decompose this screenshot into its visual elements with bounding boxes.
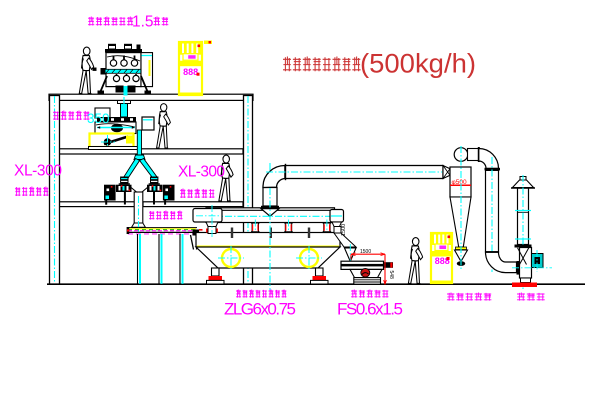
- svg-text:548: 548: [388, 271, 394, 280]
- svg-text:ZLG6x0.75: ZLG6x0.75: [224, 300, 296, 319]
- svg-text:888: 888: [183, 67, 198, 77]
- svg-text:1.5: 1.5: [132, 14, 154, 31]
- svg-text:350: 350: [87, 111, 110, 126]
- svg-text:XL-300: XL-300: [178, 164, 225, 181]
- svg-text:FS0.6x1.5: FS0.6x1.5: [337, 300, 403, 319]
- svg-text:1500: 1500: [341, 224, 347, 236]
- svg-text:1500: 1500: [360, 249, 371, 255]
- svg-text:XL-300: XL-300: [14, 163, 62, 180]
- svg-text:φ500: φ500: [452, 179, 467, 186]
- svg-text:(500kg/h): (500kg/h): [360, 49, 476, 79]
